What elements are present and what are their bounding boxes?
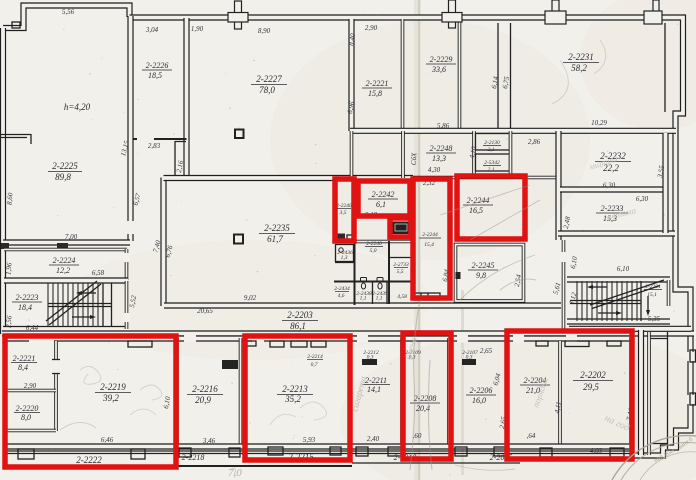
svg-text:2,65: 2,65 bbox=[480, 347, 493, 355]
svg-text:2,86: 2,86 bbox=[528, 138, 541, 146]
svg-text:8,0: 8,0 bbox=[21, 413, 31, 422]
svg-text:18,5: 18,5 bbox=[148, 71, 162, 80]
svg-text:6,10: 6,10 bbox=[617, 265, 630, 273]
svg-text:2-2248: 2-2248 bbox=[430, 144, 453, 153]
svg-text:9,02: 9,02 bbox=[244, 294, 257, 302]
svg-text:2-2244: 2-2244 bbox=[467, 196, 490, 205]
svg-text:2-2246: 2-2246 bbox=[336, 202, 352, 209]
svg-text:13,3: 13,3 bbox=[432, 154, 446, 163]
svg-text:2-2221: 2-2221 bbox=[366, 79, 389, 88]
svg-text:12,2: 12,2 bbox=[56, 266, 70, 275]
svg-text:0,7: 0,7 bbox=[311, 362, 318, 368]
svg-text:0,3: 0,3 bbox=[367, 355, 374, 361]
svg-text:6,30: 6,30 bbox=[636, 195, 649, 203]
svg-text:2-2219: 2-2219 bbox=[100, 382, 126, 392]
svg-text:2-2220: 2-2220 bbox=[16, 404, 39, 413]
svg-text:2-2235: 2-2235 bbox=[264, 223, 290, 233]
svg-text:2-2214: 2-2214 bbox=[307, 353, 323, 360]
svg-text:2-2244: 2-2244 bbox=[422, 231, 438, 238]
svg-text:29,5: 29,5 bbox=[583, 382, 599, 392]
svg-text:2-2208: 2-2208 bbox=[414, 394, 437, 403]
svg-text:2,1: 2,1 bbox=[488, 167, 495, 173]
svg-text:2-2130: 2-2130 bbox=[484, 140, 500, 146]
svg-text:16,5: 16,5 bbox=[469, 206, 483, 215]
svg-text:15,8: 15,8 bbox=[368, 89, 382, 98]
svg-text:86,1: 86,1 bbox=[290, 321, 306, 331]
svg-text:2-2201: 2-2201 bbox=[645, 284, 661, 290]
svg-text:7,00: 7,00 bbox=[65, 233, 78, 241]
svg-text:6,1: 6,1 bbox=[376, 200, 386, 209]
svg-text:5,86: 5,86 bbox=[437, 122, 450, 130]
svg-text:2-2223: 2-2223 bbox=[16, 293, 39, 302]
svg-text:3,5: 3,5 bbox=[339, 210, 347, 216]
svg-text:2-2231: 2-2231 bbox=[568, 52, 594, 62]
svg-text:2-2245: 2-2245 bbox=[472, 261, 495, 270]
svg-text:3,46: 3,46 bbox=[202, 437, 216, 445]
svg-text:2-2733: 2-2733 bbox=[393, 262, 409, 268]
svg-text:2-2224: 2-2224 bbox=[53, 256, 76, 265]
svg-text:2-2203: 2-2203 bbox=[287, 310, 313, 320]
svg-text:5,0: 5,0 bbox=[370, 248, 377, 254]
svg-text:1,3: 1,3 bbox=[341, 255, 348, 261]
svg-text:15,1: 15,1 bbox=[647, 292, 657, 298]
svg-text:7,0: 7,0 bbox=[228, 467, 242, 479]
svg-text:33,6: 33,6 bbox=[431, 65, 446, 74]
svg-text:,64: ,64 bbox=[527, 432, 536, 440]
svg-text:14,1: 14,1 bbox=[367, 385, 381, 394]
svg-text:2-2218: 2-2218 bbox=[182, 453, 205, 462]
svg-text:9,8: 9,8 bbox=[476, 271, 486, 280]
svg-text:35,2: 35,2 bbox=[284, 394, 301, 404]
svg-text:10,29: 10,29 bbox=[591, 119, 607, 127]
svg-text:2-2222: 2-2222 bbox=[76, 455, 102, 465]
svg-text:h=4,20: h=4,20 bbox=[64, 102, 91, 112]
svg-text:2-2225: 2-2225 bbox=[52, 161, 78, 171]
svg-text:2-2211: 2-2211 bbox=[365, 376, 387, 385]
svg-text:2-2227: 2-2227 bbox=[256, 74, 282, 84]
svg-text:16,0: 16,0 bbox=[472, 396, 486, 405]
svg-text:15,4: 15,4 bbox=[424, 241, 434, 248]
svg-text:2,90: 2,90 bbox=[365, 24, 378, 32]
svg-text:20,9: 20,9 bbox=[195, 395, 211, 405]
svg-text:2-2216: 2-2216 bbox=[192, 384, 218, 394]
svg-text:5,5: 5,5 bbox=[397, 269, 404, 275]
svg-text:58,2: 58,2 bbox=[571, 63, 587, 73]
svg-text:1,96: 1,96 bbox=[4, 262, 13, 275]
svg-text:8,60: 8,60 bbox=[5, 192, 14, 205]
svg-text:5,35: 5,35 bbox=[648, 315, 661, 323]
svg-text:2-2202: 2-2202 bbox=[580, 370, 606, 380]
svg-text:4,03: 4,03 bbox=[590, 447, 603, 455]
svg-text:4,58: 4,58 bbox=[397, 293, 407, 300]
svg-text:4,30: 4,30 bbox=[428, 166, 441, 174]
svg-text:2-2226: 2-2226 bbox=[146, 61, 169, 70]
svg-text:18,4: 18,4 bbox=[18, 303, 32, 312]
svg-text:2-2221: 2-2221 bbox=[13, 354, 36, 363]
svg-text:6,30: 6,30 bbox=[603, 182, 616, 190]
svg-text:6,46: 6,46 bbox=[101, 436, 114, 444]
svg-text:8,90: 8,90 bbox=[258, 27, 271, 35]
svg-text:8,4: 8,4 bbox=[18, 363, 28, 372]
svg-text:6,58: 6,58 bbox=[92, 269, 105, 277]
svg-text:2-2242: 2-2242 bbox=[372, 190, 395, 199]
svg-text:20,65: 20,65 bbox=[197, 307, 213, 315]
svg-text:5,56: 5,56 bbox=[62, 8, 75, 16]
svg-text:2-2229: 2-2229 bbox=[430, 55, 453, 64]
svg-text:2,56: 2,56 bbox=[4, 315, 13, 328]
svg-text:61,7: 61,7 bbox=[267, 234, 283, 244]
svg-text:0,3: 0,3 bbox=[466, 355, 473, 361]
svg-text:6,44: 6,44 bbox=[26, 324, 39, 332]
svg-text:2,83: 2,83 bbox=[148, 142, 161, 150]
svg-text:2-2434: 2-2434 bbox=[334, 285, 350, 292]
svg-text:2-2213: 2-2213 bbox=[282, 384, 308, 394]
svg-text:4,6: 4,6 bbox=[338, 292, 345, 299]
svg-text:2-2206: 2-2206 bbox=[470, 386, 493, 395]
svg-text:2-5342: 2-5342 bbox=[484, 159, 500, 166]
svg-text:1,1: 1,1 bbox=[360, 296, 367, 302]
svg-text:78,0: 78,0 bbox=[259, 85, 275, 95]
svg-text:1,1: 1,1 bbox=[376, 296, 383, 302]
svg-text:39,2: 39,2 bbox=[102, 393, 119, 403]
svg-text:,60: ,60 bbox=[413, 432, 422, 440]
svg-text:СбХ: СбХ bbox=[410, 152, 418, 166]
svg-text:2,90: 2,90 bbox=[24, 382, 37, 390]
svg-text:2,1: 2,1 bbox=[488, 147, 495, 153]
svg-text:3,04: 3,04 bbox=[145, 26, 159, 34]
svg-text:1,90: 1,90 bbox=[191, 25, 204, 33]
svg-text:5,93: 5,93 bbox=[303, 436, 316, 444]
svg-text:89,8: 89,8 bbox=[55, 172, 71, 182]
svg-text:2-2240: 2-2240 bbox=[366, 240, 382, 247]
svg-text:2,40: 2,40 bbox=[367, 435, 380, 443]
